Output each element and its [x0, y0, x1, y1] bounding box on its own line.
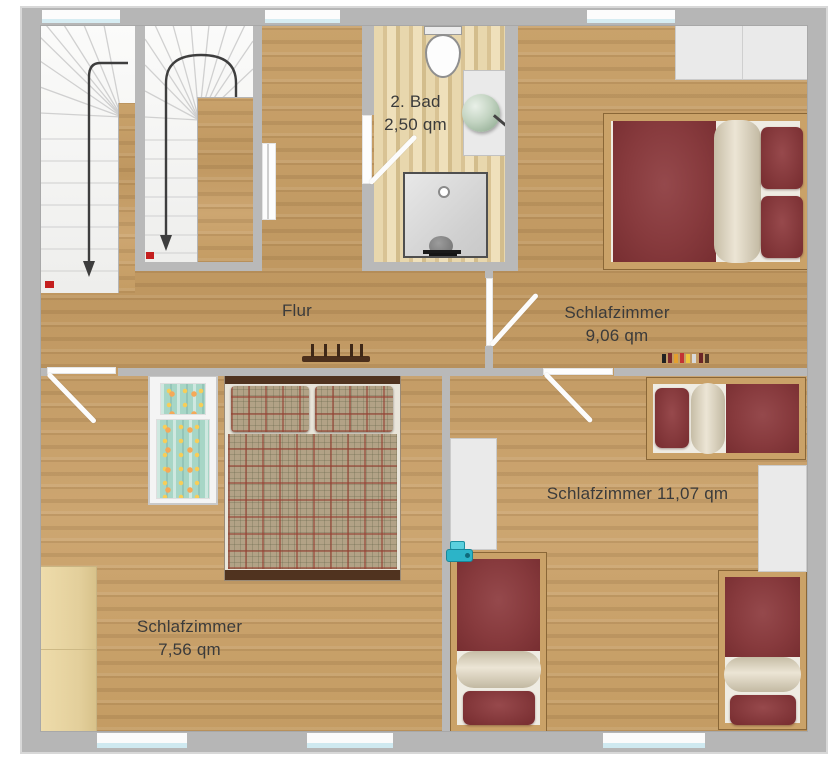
- room-name: Schlafzimmer 11,07 qm: [547, 484, 729, 503]
- window: [42, 10, 120, 23]
- room-name: Schlafzimmer: [137, 617, 242, 636]
- toy-teal-wheel: [465, 553, 470, 558]
- room-label-flur: Flur: [262, 299, 332, 322]
- room-name: Schlafzimmer: [564, 303, 669, 322]
- room-area: 7,56 qm: [158, 640, 221, 659]
- window: [307, 733, 393, 748]
- room-name: 2. Bad: [390, 92, 440, 111]
- window: [97, 733, 187, 748]
- room-label-schlafzimmer-7: Schlafzimmer 7,56 qm: [112, 615, 267, 661]
- room-label-bad: 2. Bad 2,50 qm: [358, 90, 473, 136]
- room-label-schlafzimmer-11: Schlafzimmer 11,07 qm: [530, 482, 745, 505]
- window: [587, 10, 675, 23]
- room-name: Flur: [282, 301, 312, 320]
- window: [603, 733, 705, 748]
- room-area: 9,06 qm: [586, 326, 649, 345]
- window: [265, 10, 340, 23]
- floorplan: 2. Bad 2,50 qm Flur Schlafzimmer 9,06 qm…: [0, 0, 840, 770]
- toy-teal: [446, 541, 474, 565]
- room-area: 2,50 qm: [384, 115, 447, 134]
- room-label-schlafzimmer-9: Schlafzimmer 9,06 qm: [528, 301, 706, 347]
